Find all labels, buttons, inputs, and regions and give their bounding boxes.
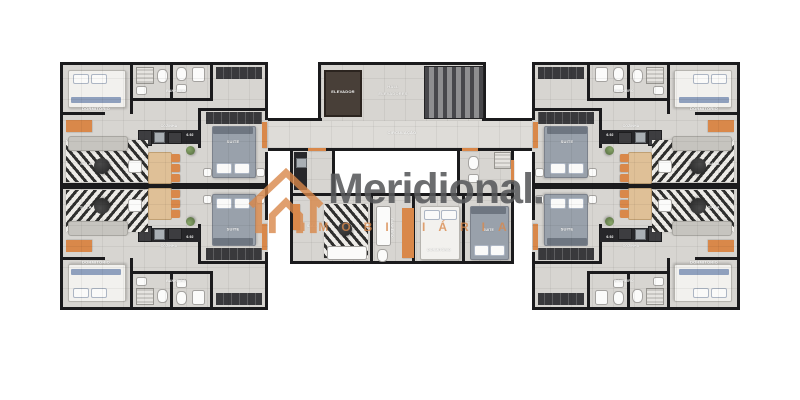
room-label-suite: SUITE	[212, 227, 254, 232]
room-label-living: SALA	[68, 162, 104, 167]
dining-chair	[171, 190, 180, 198]
wardrobe	[216, 293, 262, 305]
wall	[133, 271, 213, 274]
bed	[674, 70, 732, 108]
sink	[136, 277, 147, 286]
suite-bed	[470, 206, 509, 260]
pillow	[91, 74, 107, 84]
wall	[60, 62, 268, 65]
kitchen-sink	[296, 158, 307, 168]
stove	[168, 228, 182, 240]
dining-chair	[171, 200, 180, 208]
sink	[136, 86, 147, 95]
room-label-living: SALA	[696, 162, 732, 167]
room-label-kitchen: COZINHA	[606, 124, 656, 128]
wall	[318, 62, 321, 121]
nightstand	[535, 195, 544, 204]
bed-runner	[679, 269, 729, 275]
suite-bed	[212, 194, 256, 246]
dining-table	[148, 188, 172, 220]
suite-bed	[212, 126, 256, 178]
right-wing: DORMITÓRIO BANHEIRO SUITE COZINHA 6.92 S…	[532, 62, 740, 310]
suite-bed	[544, 126, 588, 178]
sofa	[68, 221, 128, 236]
headboard	[547, 238, 587, 245]
room-label-living: SALA	[696, 205, 732, 210]
dresser	[66, 120, 92, 132]
room-label-bedroom: DORMITÓRIO	[674, 260, 734, 265]
wall	[265, 186, 268, 220]
wardrobe	[206, 112, 262, 124]
pillow	[693, 288, 709, 298]
room-label-suite: SUITE	[546, 140, 588, 145]
wall	[667, 65, 670, 114]
wall	[60, 186, 63, 310]
pillow	[711, 74, 727, 84]
pillow	[216, 163, 232, 174]
light-well	[335, 151, 457, 193]
dining-chair	[620, 210, 629, 218]
wall	[532, 307, 740, 310]
dining-table	[628, 188, 652, 220]
pillow	[490, 245, 505, 256]
apartment-unit: DORMITÓRIO BANHEIRO SUITE COZINHA 6.92 S…	[532, 186, 740, 310]
wardrobe	[216, 67, 262, 79]
wall	[268, 118, 322, 121]
wall	[130, 258, 133, 307]
dining-chair	[171, 164, 180, 172]
wall	[210, 271, 213, 307]
wall	[290, 193, 514, 196]
shower	[136, 67, 154, 84]
wardrobe	[206, 248, 262, 260]
wall	[535, 261, 599, 264]
door	[533, 122, 538, 148]
dining-chair	[620, 190, 629, 198]
dimension-label: 6.92	[182, 133, 198, 137]
toilet	[157, 289, 168, 303]
dining-chair	[171, 174, 180, 182]
washer	[595, 67, 608, 82]
plant	[605, 217, 614, 226]
pillow	[234, 198, 250, 209]
pillow	[73, 288, 89, 298]
building-floor-plan: DORMITÓRIO BANHEIRO SUITE COZINHA 6.92 S…	[0, 0, 800, 400]
wall	[695, 112, 737, 115]
wall	[667, 258, 670, 307]
room-label-bathroom: BANHEIRO	[156, 279, 196, 283]
toilet	[176, 67, 187, 81]
wall	[60, 62, 63, 186]
room-label-kitchen: COZINHA	[144, 244, 194, 248]
nightstand	[203, 195, 212, 204]
wall	[457, 148, 460, 196]
room-label-suite: SUITE	[212, 140, 254, 145]
stove	[168, 132, 182, 144]
toilet	[468, 156, 479, 170]
washer	[192, 290, 205, 305]
dining-chair	[620, 200, 629, 208]
room-label-kitchen: COZINHA	[606, 244, 656, 248]
toilet	[377, 249, 388, 262]
wall	[370, 196, 373, 264]
shower	[494, 152, 511, 169]
wall	[60, 307, 268, 310]
shower	[646, 288, 664, 305]
sink	[653, 277, 664, 286]
room-label-kitchen: COZINHA	[144, 124, 194, 128]
sofa	[68, 136, 128, 151]
toilet	[157, 69, 168, 83]
sofa	[672, 136, 732, 151]
toilet	[613, 291, 624, 305]
pillow	[693, 74, 709, 84]
coffee-table	[338, 222, 352, 236]
headboard	[471, 207, 506, 214]
kitchen-sink	[154, 132, 165, 143]
wall	[265, 152, 268, 186]
bed	[68, 70, 126, 108]
nightstand	[588, 168, 597, 177]
stove	[618, 132, 632, 144]
bed-runner	[71, 269, 121, 275]
wall	[332, 148, 335, 196]
armchair	[128, 199, 142, 212]
room-label-bedroom: DORMITÓRIO	[674, 107, 734, 112]
hall-label: HALL	[366, 85, 420, 90]
wall	[201, 261, 265, 264]
room-label-bedroom: DORMITÓRIO	[418, 248, 460, 252]
wardrobe	[538, 112, 594, 124]
dining-table	[628, 152, 652, 184]
sink	[653, 86, 664, 95]
dresser	[708, 240, 734, 252]
wall	[587, 65, 590, 101]
room-label-bathroom: BANHEIRO	[604, 89, 644, 93]
bed-runner	[679, 97, 729, 103]
pillow	[550, 163, 566, 174]
toilet	[613, 67, 624, 81]
shower	[646, 67, 664, 84]
nightstand	[256, 195, 265, 204]
pillow	[711, 288, 727, 298]
wall	[210, 65, 213, 101]
pillow	[216, 198, 232, 209]
apartment-unit: DORMITÓRIO BANHEIRO SUITE COZINHA 6.92 S…	[60, 186, 268, 310]
wardrobe	[538, 67, 584, 79]
nightstand	[588, 195, 597, 204]
wall	[535, 108, 599, 111]
washer	[595, 290, 608, 305]
pillow	[424, 210, 440, 220]
shower	[136, 288, 154, 305]
dining-table	[148, 152, 172, 184]
room-label-suite: SUITE	[546, 227, 588, 232]
wall	[482, 118, 532, 121]
elevator-label: ELEVADOR	[324, 90, 362, 95]
washer	[192, 67, 205, 82]
door	[511, 160, 514, 182]
armchair	[128, 160, 142, 173]
door	[293, 204, 300, 230]
wall	[265, 252, 268, 310]
apartment-unit: DORMITÓRIO BANHEIRO SUITE COZINHA 6.92 S…	[60, 62, 268, 186]
toilet	[632, 69, 643, 83]
plant	[186, 146, 195, 155]
pillow	[568, 163, 584, 174]
wall	[290, 261, 514, 264]
pillow	[234, 163, 250, 174]
circulation-label: CIRCULAÇÃO	[362, 131, 442, 136]
room-label-bathroom: BANHEIRO	[156, 89, 196, 93]
room-label-bedroom: DORMITÓRIO	[66, 260, 126, 265]
bed-runner	[71, 97, 121, 103]
dining-chair	[171, 154, 180, 162]
staircase	[424, 66, 484, 119]
headboard	[213, 238, 253, 245]
pillow	[474, 245, 489, 256]
headboard	[547, 127, 587, 134]
wall	[170, 65, 173, 98]
headboard	[213, 127, 253, 134]
door	[533, 224, 538, 250]
wall	[201, 108, 265, 111]
dresser	[66, 240, 92, 252]
pillow	[73, 74, 89, 84]
wall	[63, 112, 105, 115]
wardrobe	[538, 248, 594, 260]
kitchen-sink	[154, 229, 165, 240]
wall	[130, 65, 133, 114]
suite-bed	[544, 194, 588, 246]
dining-chair	[620, 164, 629, 172]
left-wing: DORMITÓRIO BANHEIRO SUITE COZINHA 6.92 S…	[60, 62, 268, 310]
bed	[68, 264, 126, 302]
toilet	[176, 291, 187, 305]
nightstand	[256, 168, 265, 177]
dimension-label: 6.92	[602, 235, 618, 239]
pillow	[550, 198, 566, 209]
dining-chair	[620, 154, 629, 162]
dresser	[708, 120, 734, 132]
door	[462, 148, 478, 151]
wall	[532, 62, 740, 65]
armchair	[658, 199, 672, 212]
door	[262, 122, 267, 148]
plant	[186, 217, 195, 226]
wardrobe	[538, 293, 584, 305]
plant	[605, 146, 614, 155]
wall	[133, 98, 213, 101]
dimension-label: 6.92	[182, 235, 198, 239]
sink	[468, 174, 479, 183]
room-label-bedroom: DORMITÓRIO	[66, 107, 126, 112]
bathtub	[376, 206, 391, 246]
dining-chair	[620, 174, 629, 182]
pillow	[568, 198, 584, 209]
wall	[737, 186, 740, 310]
wall	[587, 98, 667, 101]
dining-chair	[171, 210, 180, 218]
armchair	[658, 160, 672, 173]
door	[262, 224, 267, 250]
room-label-bathroom: BANHEIRO	[390, 210, 394, 246]
wall	[318, 62, 486, 65]
pillow	[91, 288, 107, 298]
wall	[462, 196, 465, 264]
stove	[618, 228, 632, 240]
hall-label: ELEVADORES	[360, 92, 426, 97]
wardrobe	[402, 208, 414, 258]
nightstand	[203, 168, 212, 177]
wall	[265, 62, 268, 120]
sofa	[327, 246, 367, 260]
wall	[532, 62, 535, 120]
room-label-living: SALA	[68, 205, 104, 210]
toilet	[632, 289, 643, 303]
wall	[737, 62, 740, 186]
kitchen-sink	[635, 229, 646, 240]
room-label-suite: SUITE	[470, 228, 507, 232]
pillow	[441, 210, 457, 220]
dimension-label: 6.92	[602, 133, 618, 137]
nightstand	[535, 168, 544, 177]
wall	[627, 65, 630, 98]
kitchen-sink	[635, 132, 646, 143]
sofa	[672, 221, 732, 236]
bed	[674, 264, 732, 302]
apartment-unit: DORMITÓRIO BANHEIRO SUITE COZINHA 6.92 S…	[532, 62, 740, 186]
door	[308, 148, 326, 151]
room-label-living: SALA	[300, 224, 324, 228]
wall	[587, 271, 590, 307]
floor-plan-canvas: DORMITÓRIO BANHEIRO SUITE COZINHA 6.92 S…	[0, 0, 800, 400]
room-label-bathroom: BANHEIRO	[604, 279, 644, 283]
